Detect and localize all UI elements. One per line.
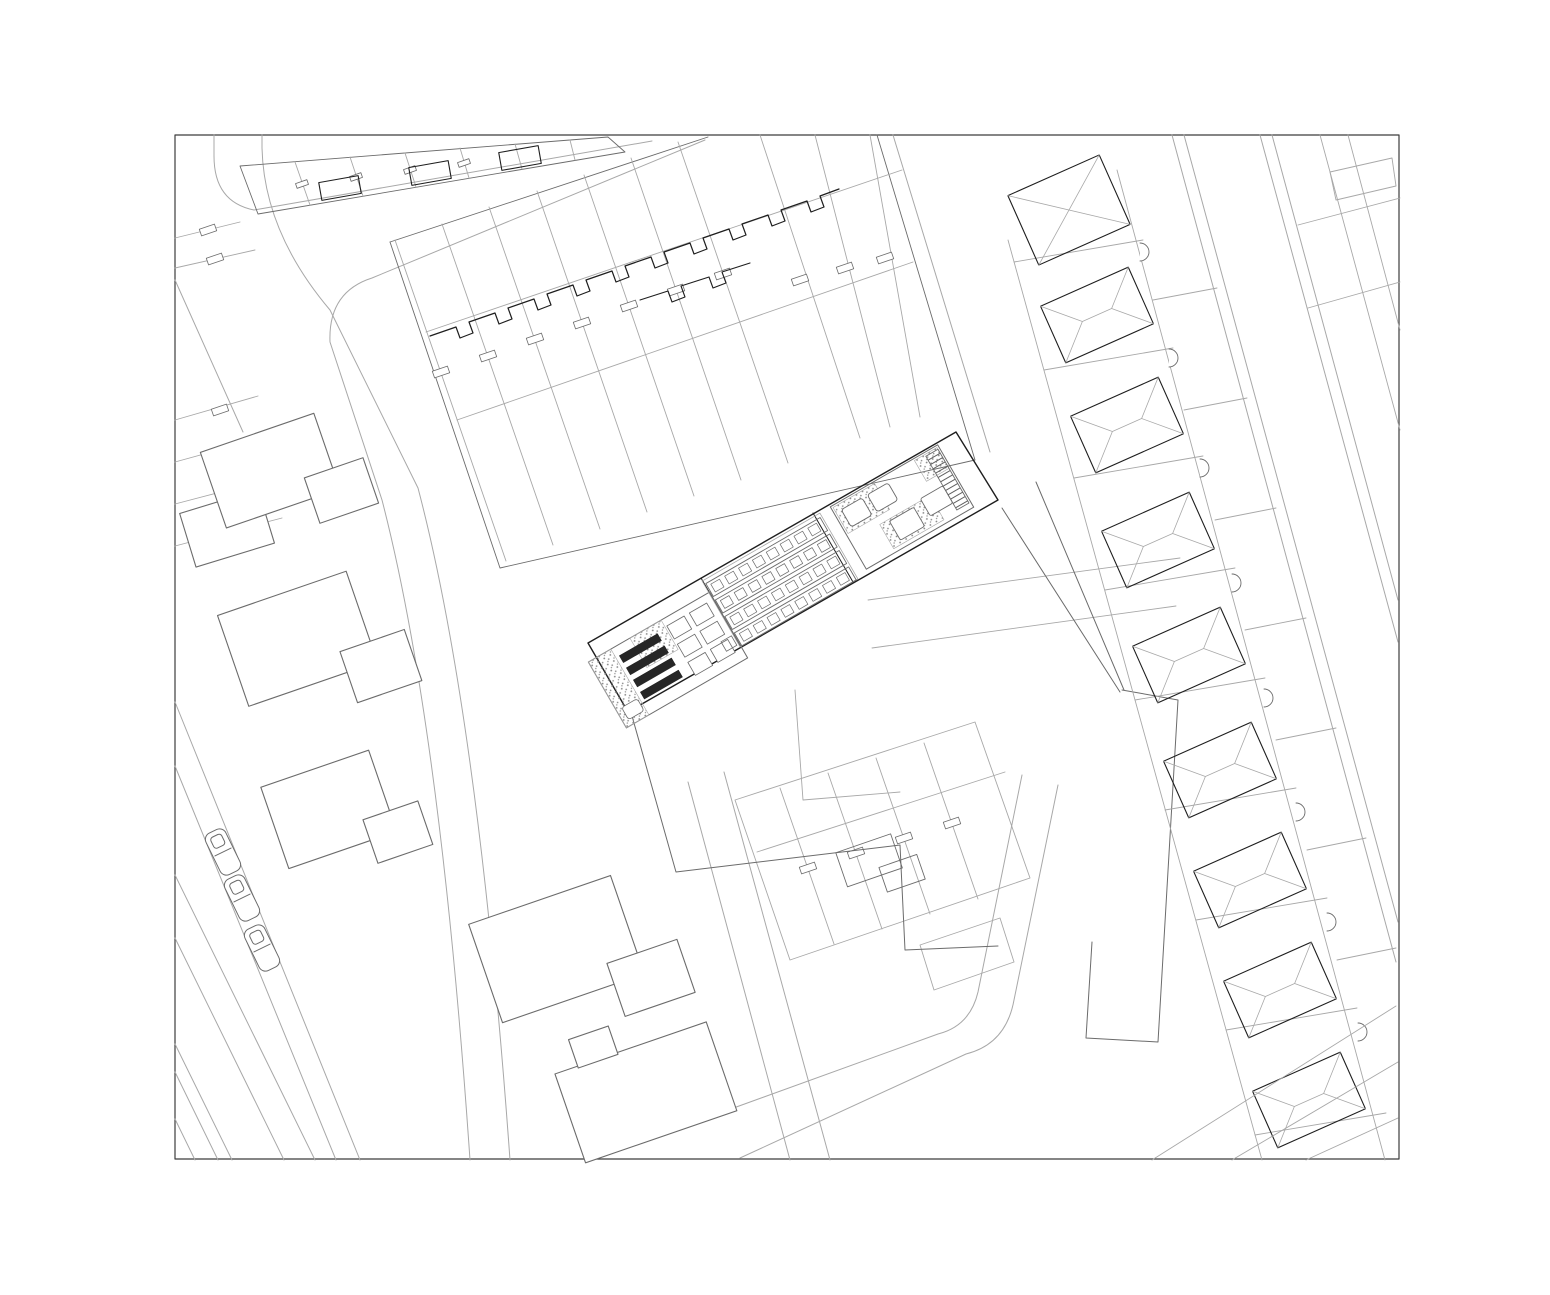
tick-shape xyxy=(799,817,960,874)
path-shape xyxy=(1307,838,1366,850)
path-shape xyxy=(724,772,830,1160)
path-shape xyxy=(872,606,1176,648)
gate-tick xyxy=(432,366,449,378)
path-shape xyxy=(175,1119,195,1160)
gate-tick xyxy=(895,832,912,844)
g-shape xyxy=(1164,722,1277,818)
g-shape xyxy=(546,995,737,1162)
planter-cell xyxy=(780,539,793,552)
path-shape xyxy=(893,135,990,452)
planter-cell xyxy=(776,564,789,577)
planter-cell xyxy=(739,563,752,576)
path-shape xyxy=(1215,508,1276,520)
site-strip xyxy=(588,432,1124,728)
rect-shape xyxy=(689,603,714,626)
rect-shape xyxy=(688,652,713,675)
g-shape xyxy=(1071,377,1184,473)
path-shape xyxy=(1152,1006,1396,1160)
g-shape xyxy=(203,827,243,878)
planter-cell xyxy=(781,605,794,618)
poly-shape xyxy=(735,722,1030,960)
planter-cell xyxy=(734,588,747,601)
row-shape xyxy=(720,540,830,609)
planter-cell xyxy=(795,597,808,610)
path-shape xyxy=(1276,728,1336,740)
path-shape xyxy=(1232,1062,1398,1160)
gate-tick xyxy=(943,817,960,829)
g-shape xyxy=(222,873,262,924)
planter-cell xyxy=(813,564,826,577)
planter-cell xyxy=(790,556,803,569)
row-shape xyxy=(739,573,849,642)
path-shape xyxy=(214,135,652,210)
path-shape xyxy=(870,135,920,417)
planter-cell xyxy=(762,572,775,585)
path-shape xyxy=(1308,282,1400,308)
gate-tick xyxy=(620,300,637,312)
planter-cell xyxy=(711,579,724,592)
path-shape xyxy=(175,1044,232,1160)
path-shape xyxy=(678,142,788,463)
path-shape xyxy=(1337,948,1396,960)
path-shape xyxy=(426,170,902,332)
site-plan-drawing xyxy=(0,0,1550,1295)
planter-cell xyxy=(725,571,738,584)
path-shape xyxy=(760,135,860,438)
planter-cell xyxy=(827,556,840,569)
gate-tick xyxy=(799,862,816,874)
planter-cell xyxy=(808,523,821,536)
bottom-center-block xyxy=(735,722,1030,990)
g-shape xyxy=(1133,607,1246,703)
path-shape xyxy=(457,262,913,420)
path-shape xyxy=(584,175,694,496)
path-shape xyxy=(728,775,1022,1110)
planter-cell xyxy=(744,604,757,617)
g-shape xyxy=(1224,942,1337,1038)
path-shape xyxy=(868,558,1180,600)
path-shape xyxy=(1260,135,1398,642)
planter-cell xyxy=(794,531,807,544)
gate-tick xyxy=(479,350,496,362)
path-shape xyxy=(395,240,506,561)
planter-cell xyxy=(748,580,761,593)
site-plan-sheet xyxy=(0,0,1550,1295)
g-shape xyxy=(261,740,433,891)
gate-tick xyxy=(211,404,228,416)
right-houses-gardens xyxy=(1008,170,1396,1160)
planter-cell xyxy=(817,540,830,553)
g-shape xyxy=(1008,155,1130,265)
planter-cell xyxy=(739,629,752,642)
planter-cell xyxy=(785,580,798,593)
planter-cell xyxy=(771,588,784,601)
planter-cell xyxy=(758,596,771,609)
planter-cell xyxy=(767,613,780,626)
planter-cell xyxy=(766,547,779,560)
path-shape xyxy=(1153,288,1217,300)
g-shape xyxy=(1041,267,1154,363)
apartment-slabs xyxy=(180,403,737,1163)
tick-shape xyxy=(432,252,893,378)
path-shape xyxy=(1002,482,1124,692)
gate-tick xyxy=(847,847,864,859)
path-shape xyxy=(815,135,890,427)
path-shape xyxy=(757,772,1005,852)
poly-shape xyxy=(920,918,1014,990)
path-shape xyxy=(430,189,839,338)
gate-tick xyxy=(836,262,853,274)
parked-cars xyxy=(203,827,282,974)
planter-cell xyxy=(752,555,765,568)
rect-shape xyxy=(677,634,702,657)
path-shape xyxy=(1272,135,1398,600)
path-shape xyxy=(1117,170,1385,1160)
path-shape xyxy=(175,1072,218,1160)
path-shape xyxy=(515,144,522,169)
path-shape xyxy=(489,207,600,529)
path-shape xyxy=(640,263,750,302)
row-shape xyxy=(730,556,840,625)
g-shape xyxy=(242,923,282,974)
gate-tick xyxy=(876,252,893,264)
path-shape xyxy=(1014,240,1143,262)
planter-cell xyxy=(730,612,743,625)
path-shape xyxy=(1348,135,1400,330)
rect-shape xyxy=(667,616,692,639)
path-shape xyxy=(1184,135,1398,922)
path-shape xyxy=(1184,398,1247,410)
path-shape xyxy=(175,280,243,432)
g-shape xyxy=(1253,1052,1366,1148)
planter-cell xyxy=(720,596,733,609)
rect-shape xyxy=(710,639,735,662)
gate-tick xyxy=(573,317,590,329)
g-shape xyxy=(218,560,422,737)
path-shape xyxy=(1044,348,1173,370)
gate-tick xyxy=(458,159,471,168)
planter-cell xyxy=(809,589,822,602)
path-shape xyxy=(1105,568,1235,590)
path-shape xyxy=(631,158,741,480)
row-shape xyxy=(711,523,821,592)
bay-window-bump xyxy=(1140,243,1367,1041)
path-shape xyxy=(570,140,575,160)
path-shape xyxy=(1298,198,1400,225)
gate-tick xyxy=(296,180,309,189)
planter-cell xyxy=(836,573,849,586)
planter-cell xyxy=(822,581,835,594)
path-shape xyxy=(537,191,647,512)
g-shape xyxy=(1102,492,1215,588)
g-shape xyxy=(469,862,695,1055)
path-shape xyxy=(795,690,900,800)
poly-shape xyxy=(1330,158,1396,200)
rect-shape xyxy=(836,834,903,887)
path-shape xyxy=(1086,690,1178,1042)
path-shape xyxy=(1008,155,1130,265)
gate-tick xyxy=(791,274,808,286)
g-shape xyxy=(1194,832,1307,928)
path-shape xyxy=(1245,618,1306,630)
planter-cell xyxy=(803,548,816,561)
rect-shape xyxy=(700,621,725,644)
path-shape xyxy=(1255,1113,1386,1135)
gate-tick xyxy=(199,224,216,236)
rect-shape xyxy=(469,876,645,1023)
path-shape xyxy=(442,224,553,545)
gate-tick xyxy=(206,253,223,265)
top-right-corner-plots xyxy=(1152,135,1400,1160)
tick-shape xyxy=(296,159,471,189)
planter-cell xyxy=(753,621,766,634)
gate-tick xyxy=(526,333,543,345)
planter-cell xyxy=(799,572,812,585)
